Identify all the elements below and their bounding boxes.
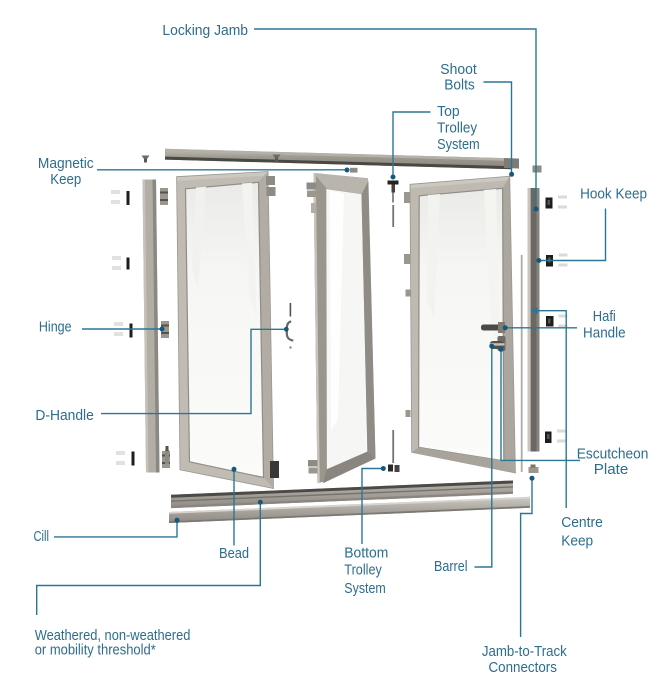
svg-text:Keep: Keep xyxy=(561,533,593,549)
svg-text:Escutcheon: Escutcheon xyxy=(577,447,649,463)
svg-text:or mobility threshold*: or mobility threshold* xyxy=(35,643,156,659)
svg-text:Barrel: Barrel xyxy=(434,559,468,575)
svg-text:Keep: Keep xyxy=(50,172,81,188)
svg-text:Trolley: Trolley xyxy=(437,120,478,136)
svg-text:System: System xyxy=(437,137,480,153)
svg-text:Top: Top xyxy=(437,104,460,120)
svg-text:Cill: Cill xyxy=(34,529,50,545)
svg-text:D-Handle: D-Handle xyxy=(35,408,93,424)
svg-text:Bead: Bead xyxy=(219,546,249,562)
svg-text:Bottom: Bottom xyxy=(344,545,388,561)
svg-text:Magnetic: Magnetic xyxy=(38,156,94,172)
svg-text:Connectors: Connectors xyxy=(489,660,557,676)
svg-text:Bolts: Bolts xyxy=(444,77,475,93)
svg-text:Hafi: Hafi xyxy=(593,309,616,325)
svg-text:Shoot: Shoot xyxy=(440,62,477,78)
svg-text:Hook Keep: Hook Keep xyxy=(580,187,647,203)
svg-text:Locking Jamb: Locking Jamb xyxy=(162,23,248,39)
svg-text:Plate: Plate xyxy=(594,462,629,478)
svg-text:Centre: Centre xyxy=(561,515,603,531)
svg-text:Weathered, non-weathered: Weathered, non-weathered xyxy=(35,628,191,644)
svg-text:Hinge: Hinge xyxy=(39,320,72,336)
svg-text:Handle: Handle xyxy=(583,326,626,342)
svg-text:Trolley: Trolley xyxy=(344,562,382,578)
svg-text:Jamb-to-Track: Jamb-to-Track xyxy=(482,644,568,660)
svg-text:System: System xyxy=(344,581,386,597)
